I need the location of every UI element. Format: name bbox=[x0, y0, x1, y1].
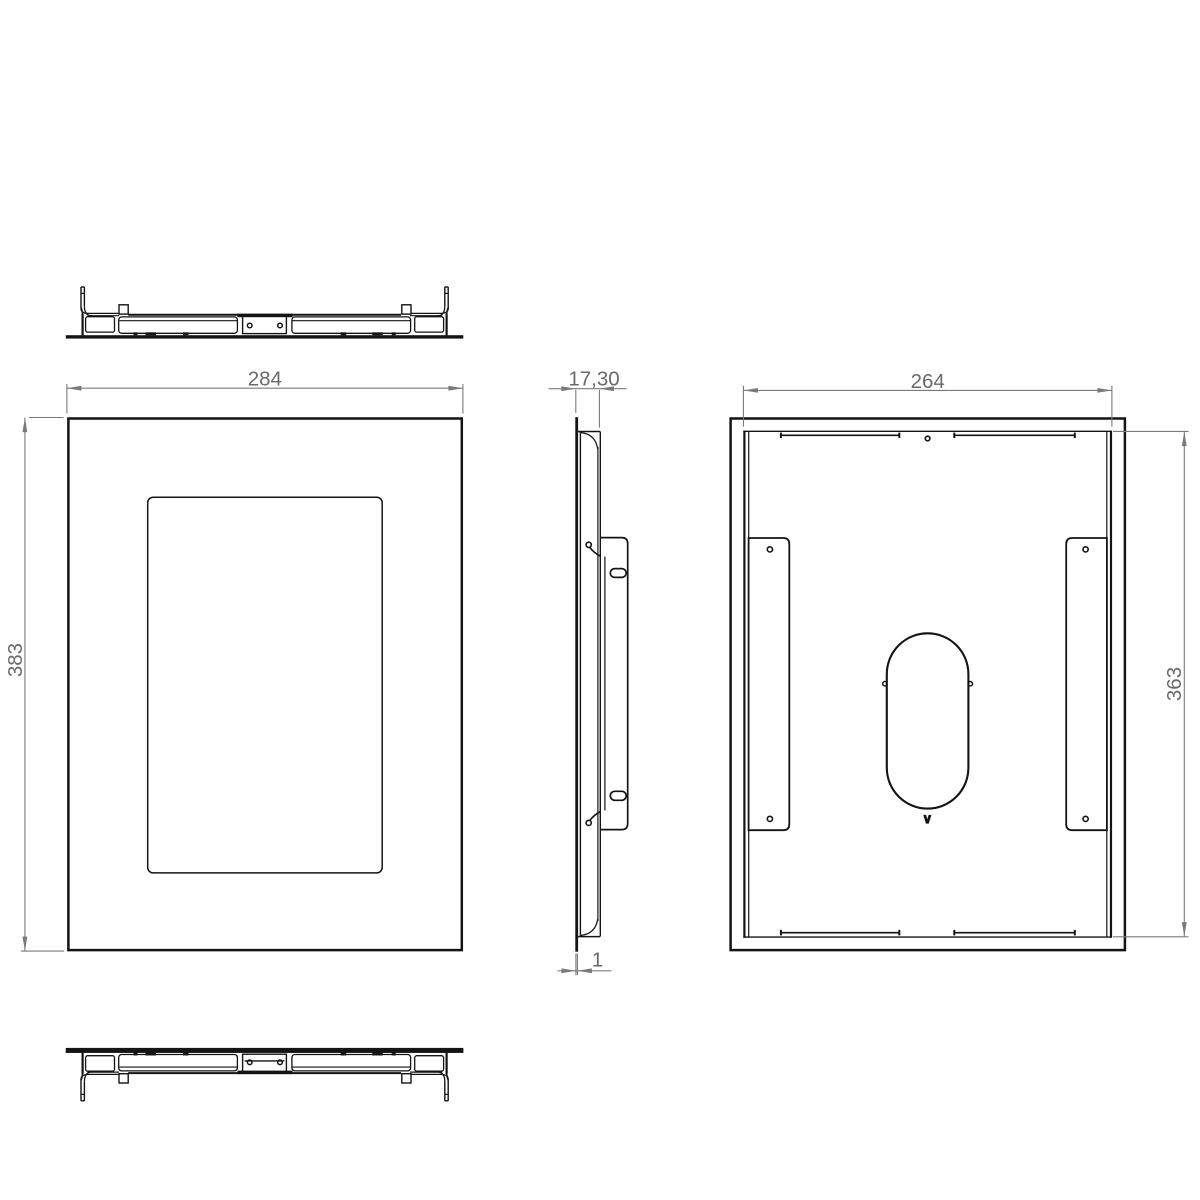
svg-text:363: 363 bbox=[1163, 667, 1186, 701]
svg-text:1: 1 bbox=[592, 949, 603, 972]
svg-text:383: 383 bbox=[4, 643, 27, 677]
svg-text:264: 264 bbox=[911, 370, 945, 393]
svg-text:284: 284 bbox=[248, 368, 282, 391]
svg-text:17,30: 17,30 bbox=[568, 368, 619, 391]
